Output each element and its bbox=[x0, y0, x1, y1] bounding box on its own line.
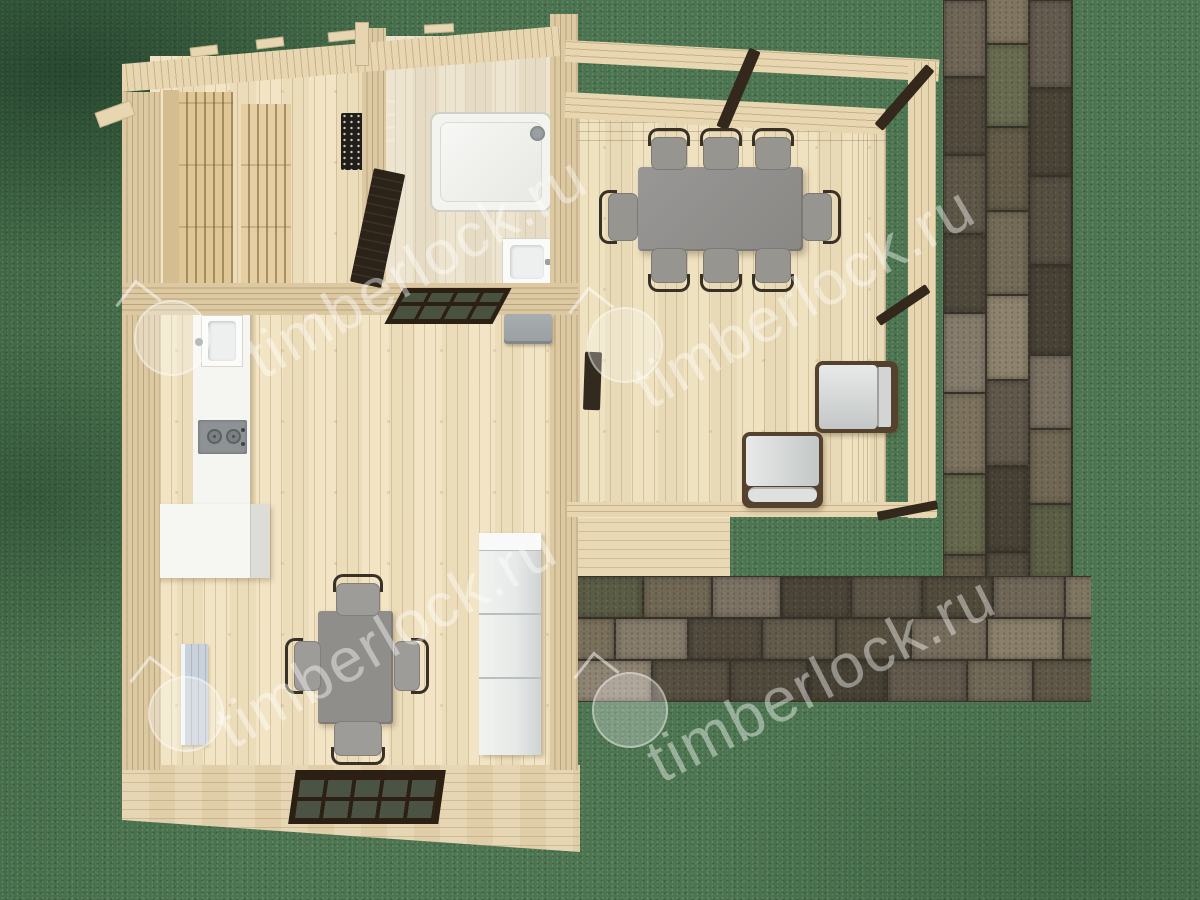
watermark-text: timberlock.ru bbox=[638, 565, 1006, 793]
watermark-logo-icon bbox=[134, 300, 210, 376]
floor-plan-render: timberlock.ru timberlock.ru timberlock.r… bbox=[0, 0, 1200, 900]
watermark-text: timberlock.ru bbox=[207, 516, 568, 760]
watermark-text: timberlock.ru bbox=[237, 146, 598, 390]
watermark-text: timberlock.ru bbox=[625, 176, 986, 420]
watermark-layer: timberlock.ru timberlock.ru timberlock.r… bbox=[0, 0, 1200, 900]
